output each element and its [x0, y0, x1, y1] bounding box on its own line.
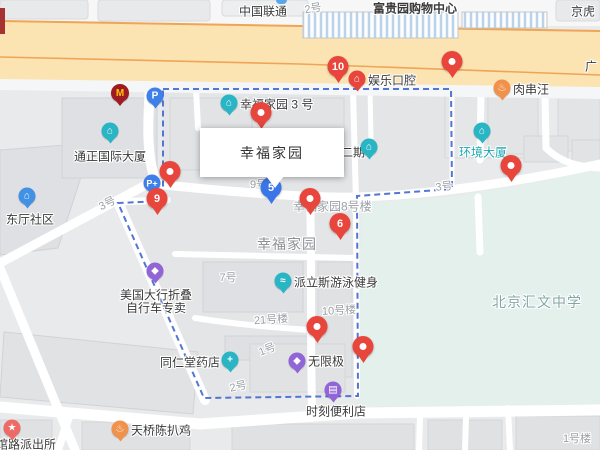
office-tower-icon-tongzheng[interactable]: ⌂	[102, 123, 119, 140]
bike-shop-icon[interactable]: ◆	[147, 263, 164, 280]
marker-10[interactable]: 10	[328, 56, 349, 89]
building-label-no21: 21号楼	[253, 310, 288, 328]
poi-label-yule-dental[interactable]: 娱乐口腔	[368, 72, 416, 89]
poi-label-tongrentang-pharmacy[interactable]: 同仁堂药店	[160, 354, 220, 371]
happiness-home-3-icon[interactable]: ⌂	[221, 95, 238, 112]
info-window-pointer	[266, 176, 284, 197]
office-tower-icon-huanjing[interactable]: ⌂	[474, 123, 491, 140]
swimming-gym-icon[interactable]: ≈	[275, 273, 292, 290]
info-window-title: 幸福家园	[240, 143, 304, 163]
poi-label-dongting-community[interactable]: 东厅社区	[6, 211, 54, 228]
area-label-huiwen-school: 北京汇文中学	[492, 292, 582, 312]
pharmacy-icon[interactable]: +	[222, 352, 239, 369]
poi-label-rouchuanwang[interactable]: 肉串汪	[513, 81, 549, 98]
parking-icon[interactable]: P	[147, 88, 164, 105]
convenience-store-icon[interactable]: ▤	[325, 382, 342, 399]
marker-plain-building8[interactable]	[300, 188, 321, 221]
building-label-no7: 7号	[219, 269, 236, 285]
marker-plain-east[interactable]	[501, 155, 522, 188]
community-icon-dongting[interactable]: ⌂	[19, 188, 36, 205]
shop-icon-wuxianji[interactable]: ◆	[289, 353, 306, 370]
marker-9[interactable]: 9	[147, 188, 168, 221]
road-label-no3-east: 3号	[435, 177, 454, 195]
poi-label-palisi-swim-gym[interactable]: 派立斯游泳健身	[294, 274, 378, 291]
poi-label-wuxianji[interactable]: 无限极	[308, 353, 344, 370]
map-canvas[interactable]: 中国联通 富贵园购物中心 京虎 广 M P P+ ⌂ 幸福家园 3 号 ⌂ 娱乐…	[0, 0, 600, 450]
restaurant-icon-rouchuan[interactable]: ♨	[494, 80, 511, 97]
poi-label-tianqiao-chicken[interactable]: 天桥陈扒鸡	[131, 422, 191, 439]
info-window[interactable]: 幸福家园	[200, 128, 344, 177]
road-label-no2-top: 2号	[303, 0, 323, 17]
residence-icon-phase-two[interactable]: ⌂	[361, 139, 378, 156]
poi-label-dahon-bike-shop[interactable]: 美国大行折叠自行车专卖	[120, 289, 192, 315]
building-label-no1-se: 1号楼	[563, 430, 591, 446]
marker-plain-top-corner[interactable]	[442, 51, 463, 84]
police-station-icon[interactable]: ★	[4, 420, 21, 437]
marker-6[interactable]: 6	[330, 213, 351, 246]
area-label-happiness-home: 幸福家园	[257, 234, 317, 254]
map-base	[0, 0, 600, 450]
mcdonalds-icon[interactable]: M	[111, 84, 129, 102]
poi-label-tongzheng-tower[interactable]: 通正国际大厦	[74, 148, 146, 165]
dental-clinic-icon[interactable]: ⌂	[349, 71, 366, 88]
restaurant-icon-tianqiao[interactable]: ♨	[112, 421, 129, 438]
poi-label-china-unicom[interactable]: 中国联通	[239, 3, 287, 20]
marker-plain-campus-edge[interactable]	[353, 336, 374, 369]
marker-plain-south[interactable]	[307, 316, 328, 349]
poi-label-fuguiyuan-mall[interactable]: 富贵园购物中心	[373, 0, 457, 17]
poi-label-guangqu-road[interactable]: 广	[585, 58, 597, 75]
poi-label-jinghu[interactable]: 京虎	[571, 3, 595, 20]
cut-off-transit-bar	[0, 8, 5, 34]
